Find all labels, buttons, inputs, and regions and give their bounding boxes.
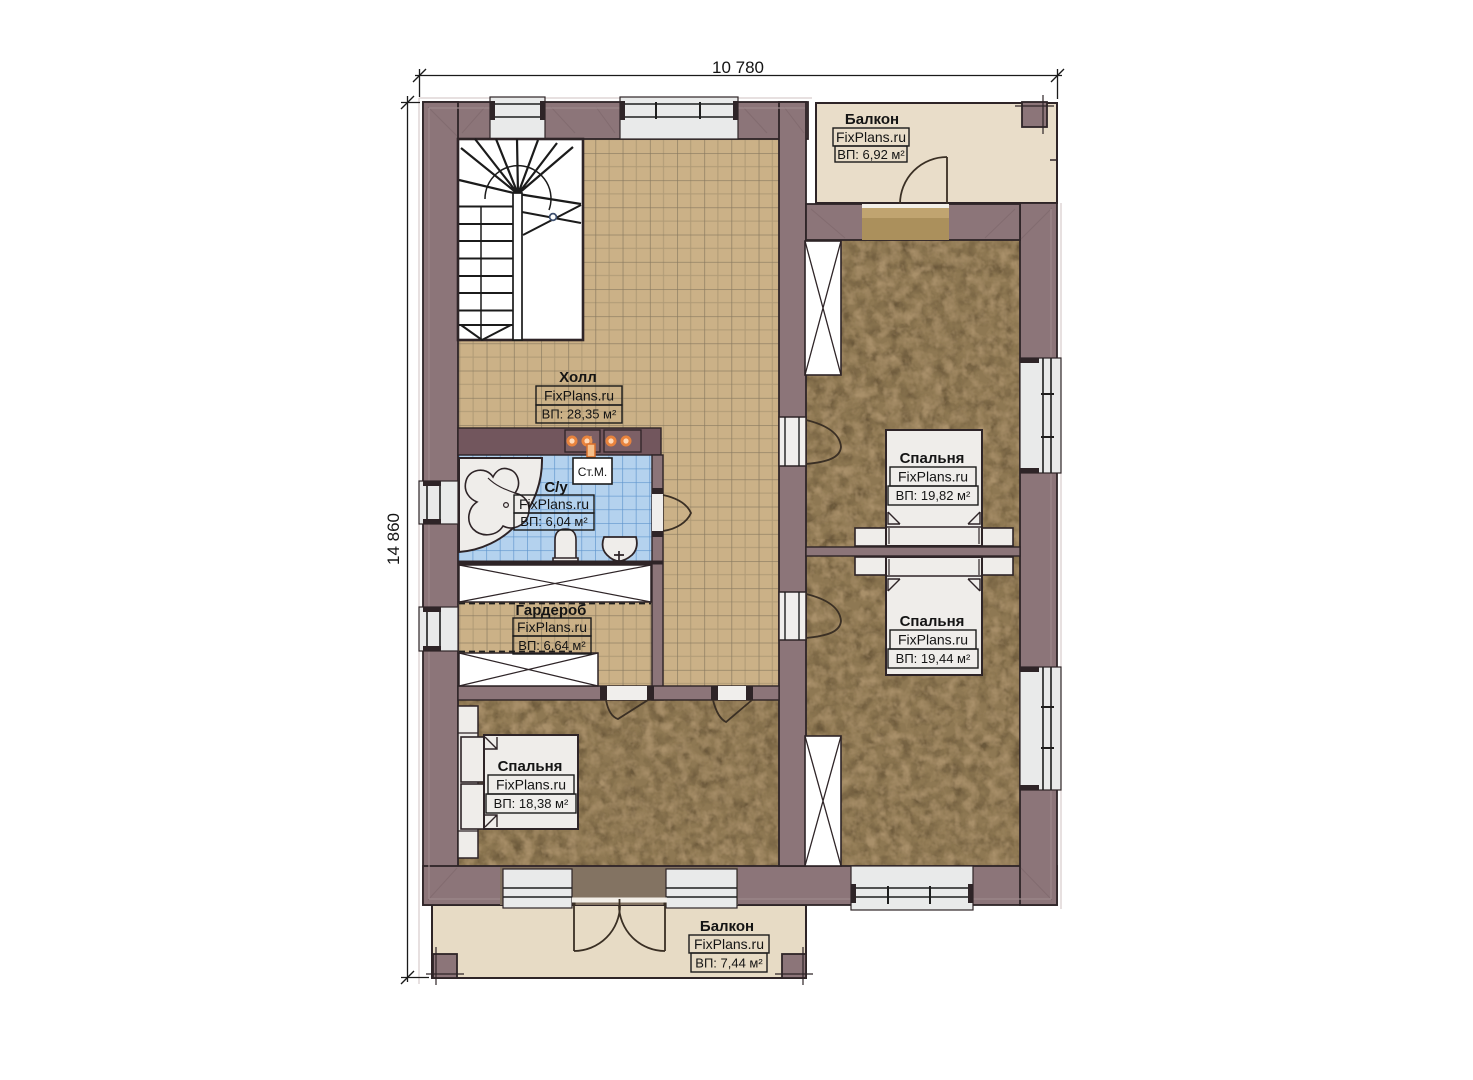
svg-text:Спальня: Спальня <box>900 450 965 467</box>
svg-text:ВП: 6,04 м²: ВП: 6,04 м² <box>520 514 588 529</box>
svg-text:Балкон: Балкон <box>700 918 754 935</box>
svg-text:С/у: С/у <box>544 479 568 496</box>
svg-text:ВП: 19,82 м²: ВП: 19,82 м² <box>896 488 971 503</box>
svg-text:ВП: 7,44 м²: ВП: 7,44 м² <box>695 956 763 971</box>
svg-text:ВП: 6,64 м²: ВП: 6,64 м² <box>518 638 586 653</box>
svg-text:Ст.М.: Ст.М. <box>578 465 608 479</box>
svg-text:FixPlans.ru: FixPlans.ru <box>517 619 587 635</box>
svg-text:FixPlans.ru: FixPlans.ru <box>544 388 614 404</box>
svg-text:ВП: 18,38 м²: ВП: 18,38 м² <box>494 796 569 811</box>
svg-text:FixPlans.ru: FixPlans.ru <box>836 129 906 145</box>
svg-text:ВП: 6,92 м²: ВП: 6,92 м² <box>837 147 905 162</box>
svg-text:Спальня: Спальня <box>498 758 563 775</box>
svg-text:ВП: 28,35 м²: ВП: 28,35 м² <box>542 407 617 422</box>
svg-text:10 780: 10 780 <box>712 58 764 77</box>
svg-text:ВП: 19,44 м²: ВП: 19,44 м² <box>896 651 971 666</box>
svg-text:Гардероб: Гардероб <box>516 602 587 619</box>
svg-text:FixPlans.ru: FixPlans.ru <box>519 496 589 512</box>
svg-text:Спальня: Спальня <box>900 613 965 630</box>
svg-text:Балкон: Балкон <box>845 111 899 128</box>
svg-text:FixPlans.ru: FixPlans.ru <box>898 632 968 648</box>
svg-text:14 860: 14 860 <box>384 513 403 565</box>
svg-text:FixPlans.ru: FixPlans.ru <box>898 469 968 485</box>
svg-text:FixPlans.ru: FixPlans.ru <box>694 936 764 952</box>
svg-text:Холл: Холл <box>559 369 597 386</box>
svg-text:FixPlans.ru: FixPlans.ru <box>496 777 566 793</box>
